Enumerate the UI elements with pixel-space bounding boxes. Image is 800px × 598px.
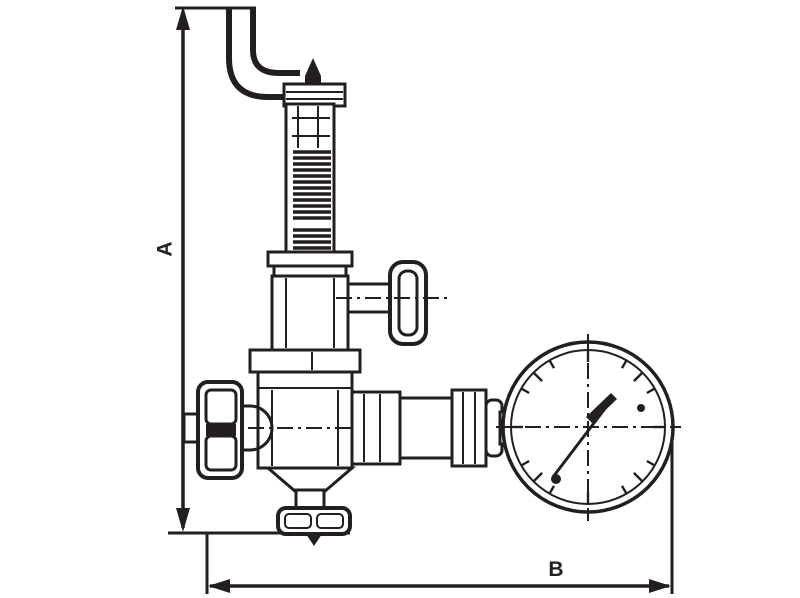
gauge-dial-dot bbox=[637, 404, 645, 412]
housing-flange bbox=[268, 252, 352, 266]
inlet-nut-band bbox=[206, 424, 236, 436]
outlet-neck bbox=[352, 392, 400, 464]
drain-tip-icon bbox=[306, 534, 322, 546]
outlet-connector bbox=[352, 390, 510, 466]
needle-tail-knob bbox=[551, 474, 561, 484]
dimension-a-arrow-down-icon bbox=[176, 508, 190, 532]
dimension-a-arrow-up-icon bbox=[176, 6, 190, 30]
bonnet bbox=[272, 276, 348, 350]
stem-cap bbox=[284, 58, 345, 106]
dimension-b-arrow-left-icon bbox=[208, 579, 230, 593]
valve-dimension-diagram: A B bbox=[0, 0, 800, 598]
spring-housing bbox=[286, 104, 334, 252]
handle-knob bbox=[390, 262, 426, 344]
pipe-inner-wall bbox=[253, 9, 300, 73]
drain-assembly bbox=[268, 468, 352, 546]
body-flange bbox=[250, 350, 360, 372]
outlet-cylinder bbox=[400, 398, 452, 458]
body-taper bbox=[268, 468, 352, 492]
adjustment-t-handle bbox=[336, 262, 448, 344]
bonnet-assembly bbox=[268, 252, 352, 350]
stem-tip-icon bbox=[305, 58, 321, 86]
pressure-gauge bbox=[496, 334, 681, 521]
outlet-hex-nut bbox=[452, 390, 486, 466]
technical-drawing-canvas: A B bbox=[0, 0, 800, 598]
dimension-b-arrow-right-icon bbox=[649, 579, 671, 593]
drain-cap-nut bbox=[278, 508, 350, 534]
dimension-b-label: B bbox=[548, 558, 563, 581]
dimension-a-label: A bbox=[154, 241, 177, 256]
